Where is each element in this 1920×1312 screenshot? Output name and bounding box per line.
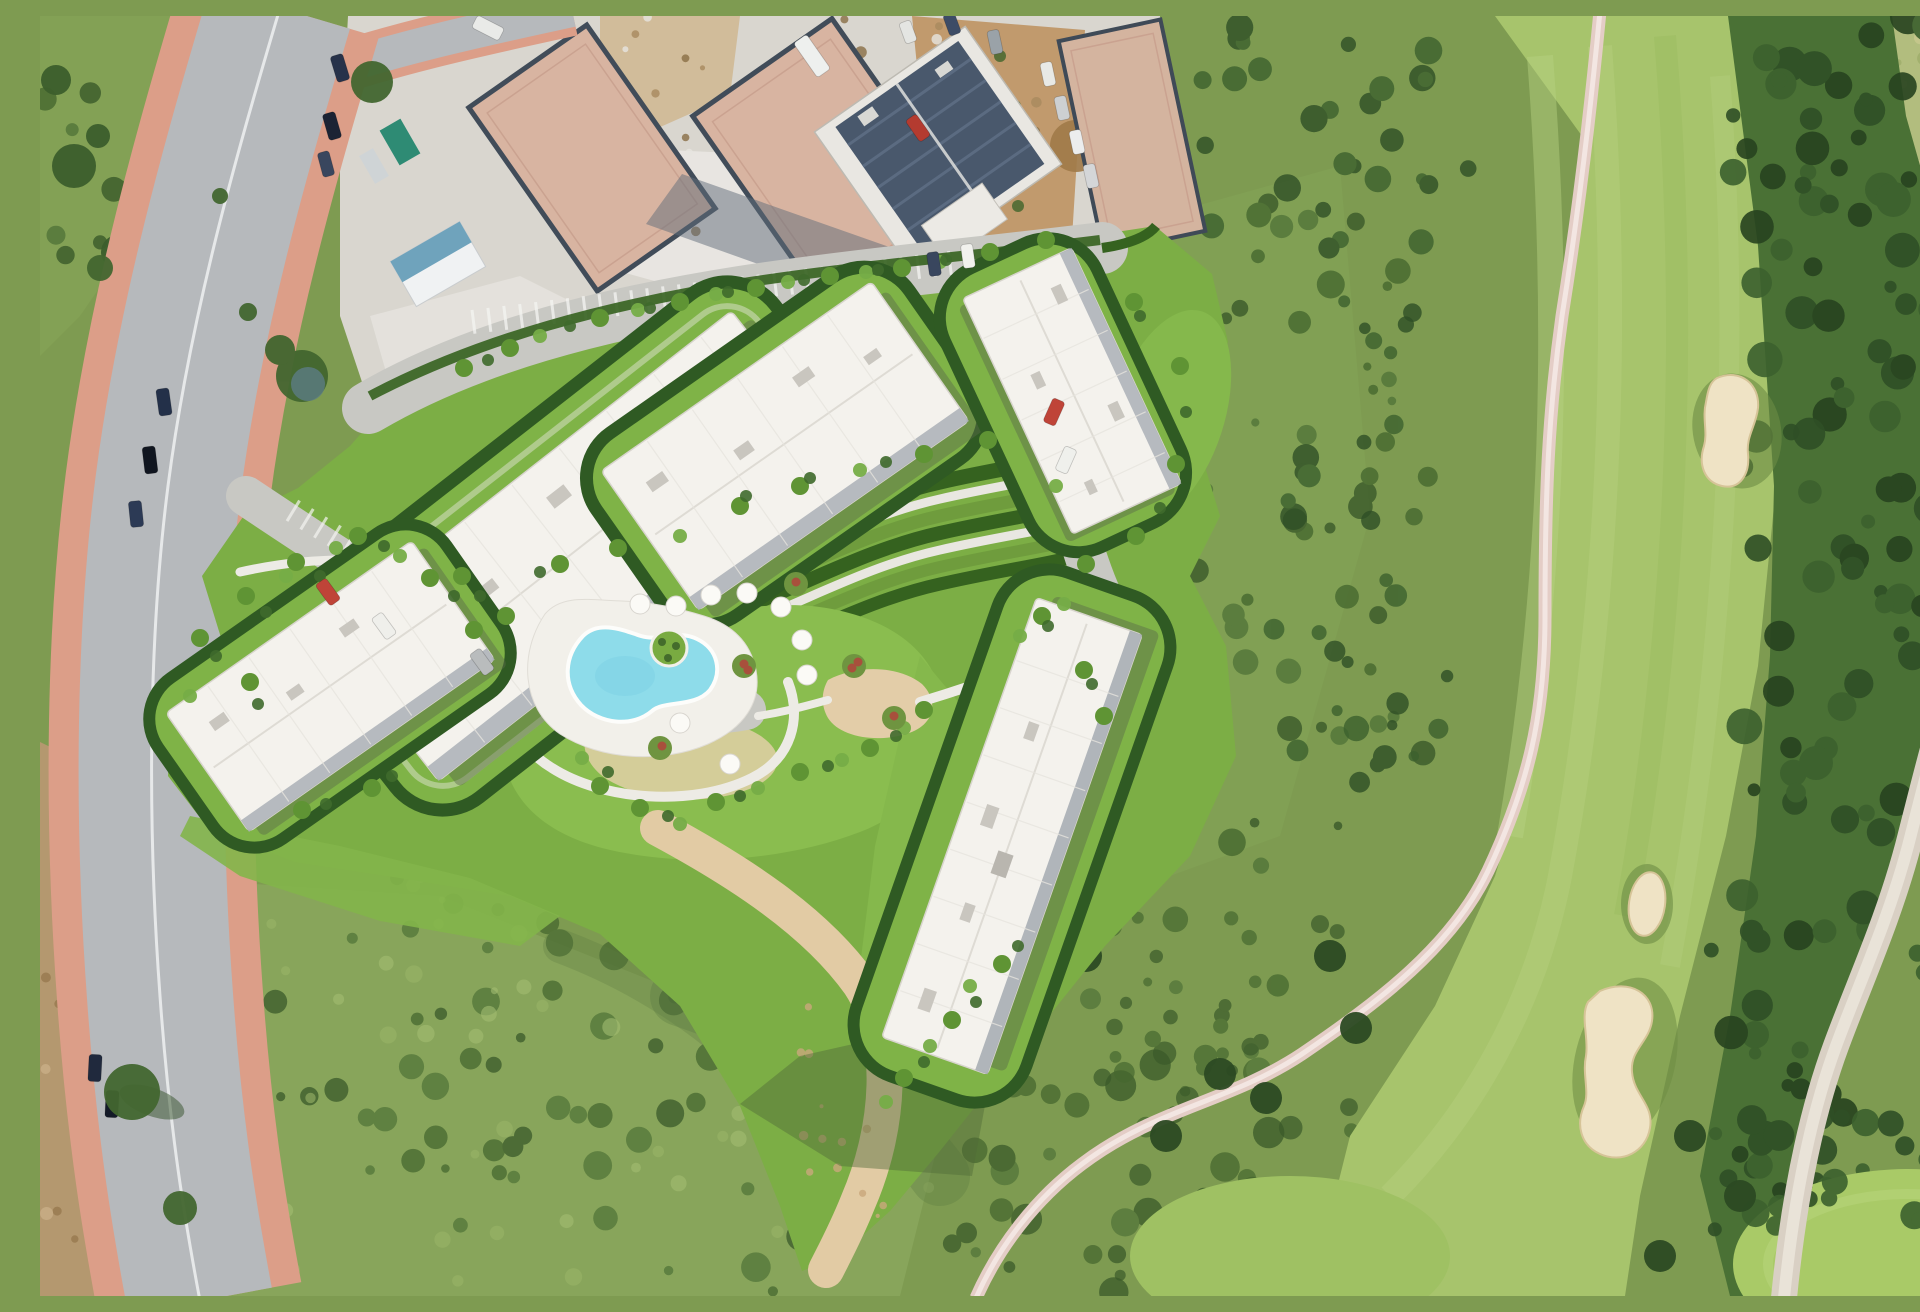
scene-svg xyxy=(40,16,1920,1296)
car xyxy=(128,500,144,527)
aerial-photo xyxy=(40,16,1920,1296)
car xyxy=(88,1054,102,1082)
pool-depth-shading xyxy=(595,656,655,696)
roadside-tree-blue xyxy=(291,367,325,401)
car xyxy=(142,446,158,474)
